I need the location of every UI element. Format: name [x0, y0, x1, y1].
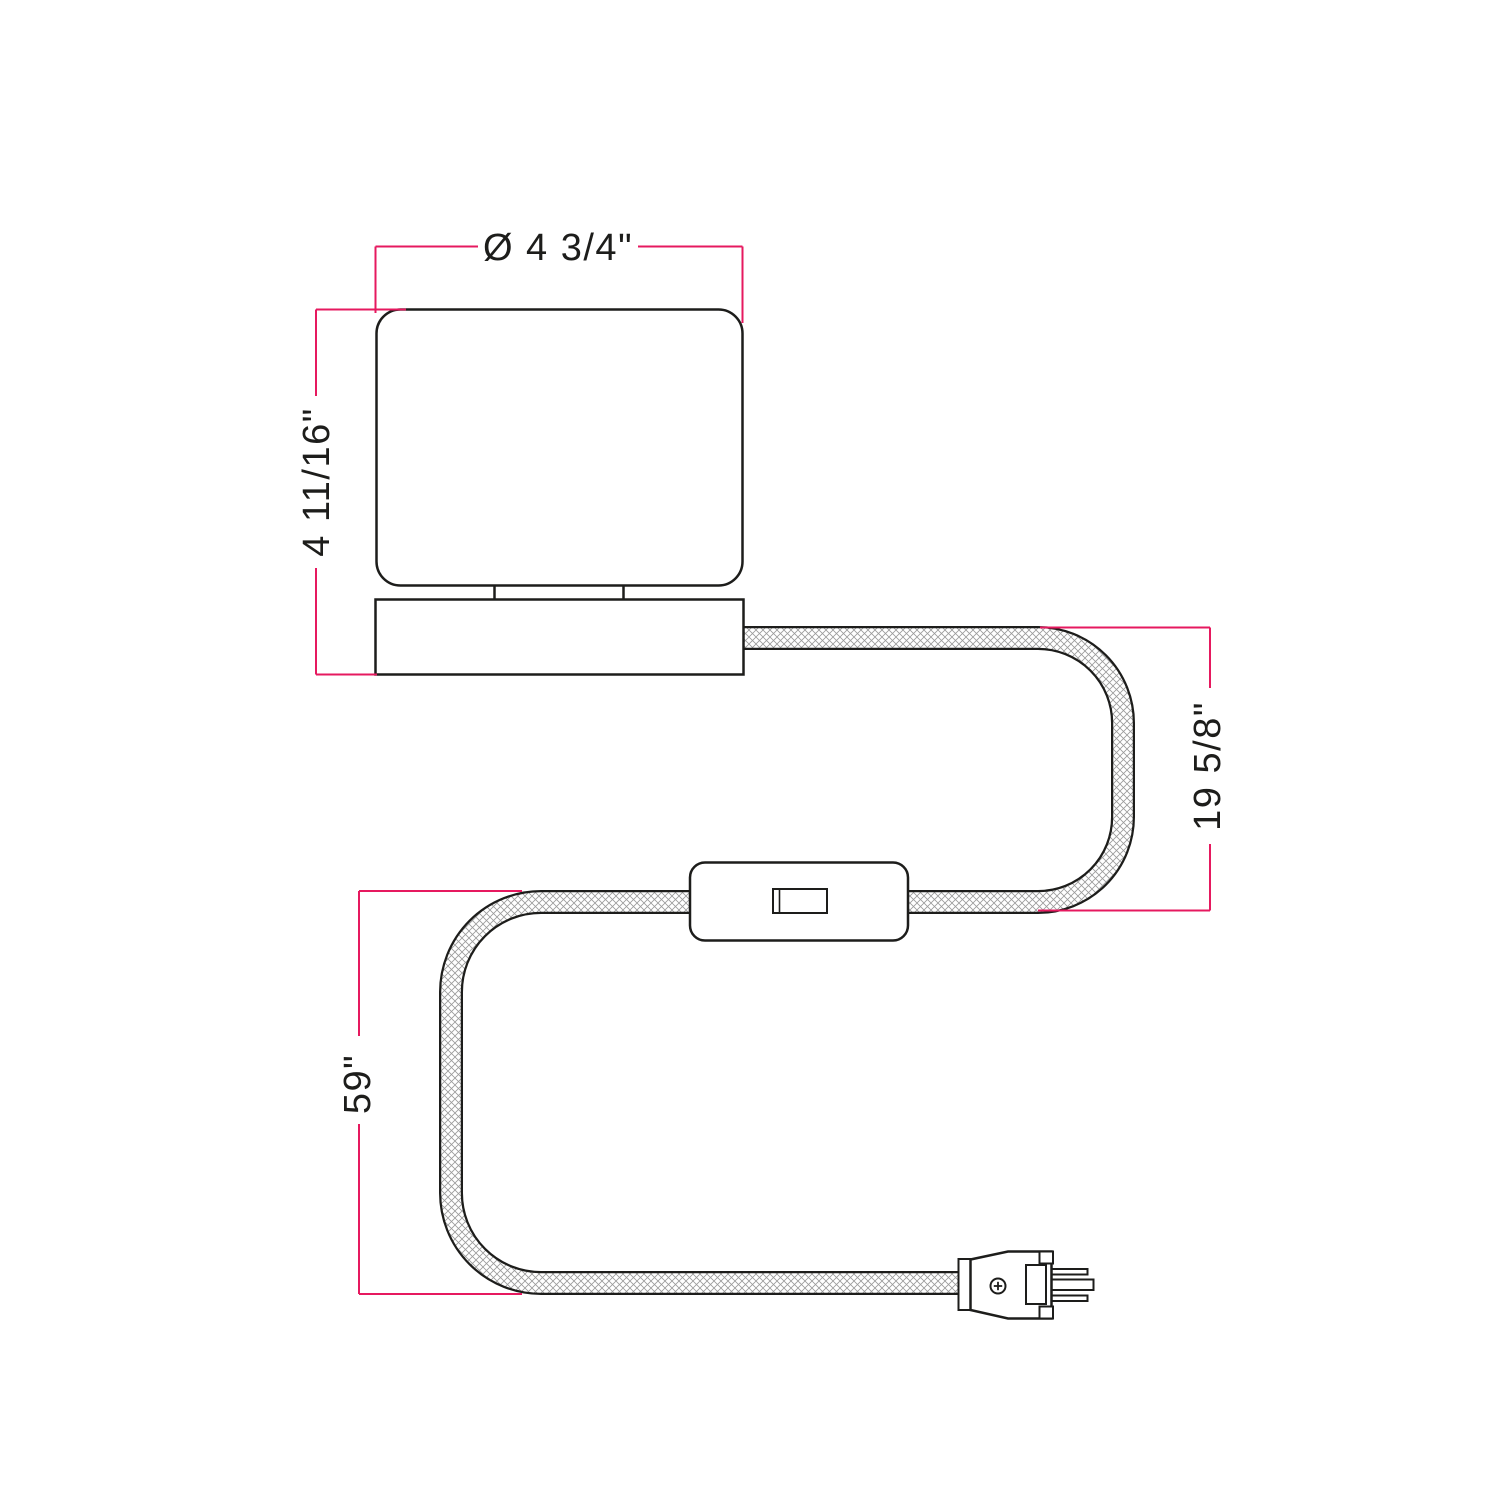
switch-rocker — [773, 889, 827, 913]
plug-prong-bottom — [1052, 1296, 1088, 1302]
plug-tab-top — [1040, 1252, 1054, 1264]
power-cord — [451, 638, 1123, 1283]
plug-prong-top — [1052, 1269, 1088, 1275]
diagram-canvas: Ø 4 3/4" 4 11/16" 19 5/8" 59" — [0, 0, 1500, 1500]
plug — [959, 1252, 1094, 1319]
dimension-cord-length: 59" — [337, 891, 522, 1294]
dimension-label-lamp-height: 4 11/16" — [296, 407, 338, 556]
plug-screw-icon — [991, 1279, 1006, 1294]
lamp-shade — [377, 310, 743, 586]
lamp — [376, 310, 744, 675]
plug-face-plate — [1026, 1265, 1046, 1304]
dimension-label-shade-diameter: Ø 4 3/4" — [483, 227, 633, 269]
inline-switch — [690, 863, 908, 941]
plug-prong-ground — [1052, 1280, 1094, 1291]
plug-tab-bottom — [1040, 1307, 1054, 1319]
lamp-base — [376, 600, 744, 675]
cord-outline — [451, 638, 1123, 1283]
lamp-dimension-diagram: Ø 4 3/4" 4 11/16" 19 5/8" 59" — [0, 0, 1500, 1500]
dimension-label-cord-length: 59" — [337, 1054, 379, 1114]
cord-braid-texture — [451, 638, 1123, 1283]
plug-collar — [959, 1259, 971, 1310]
dimension-label-cord-drop: 19 5/8" — [1187, 701, 1229, 831]
